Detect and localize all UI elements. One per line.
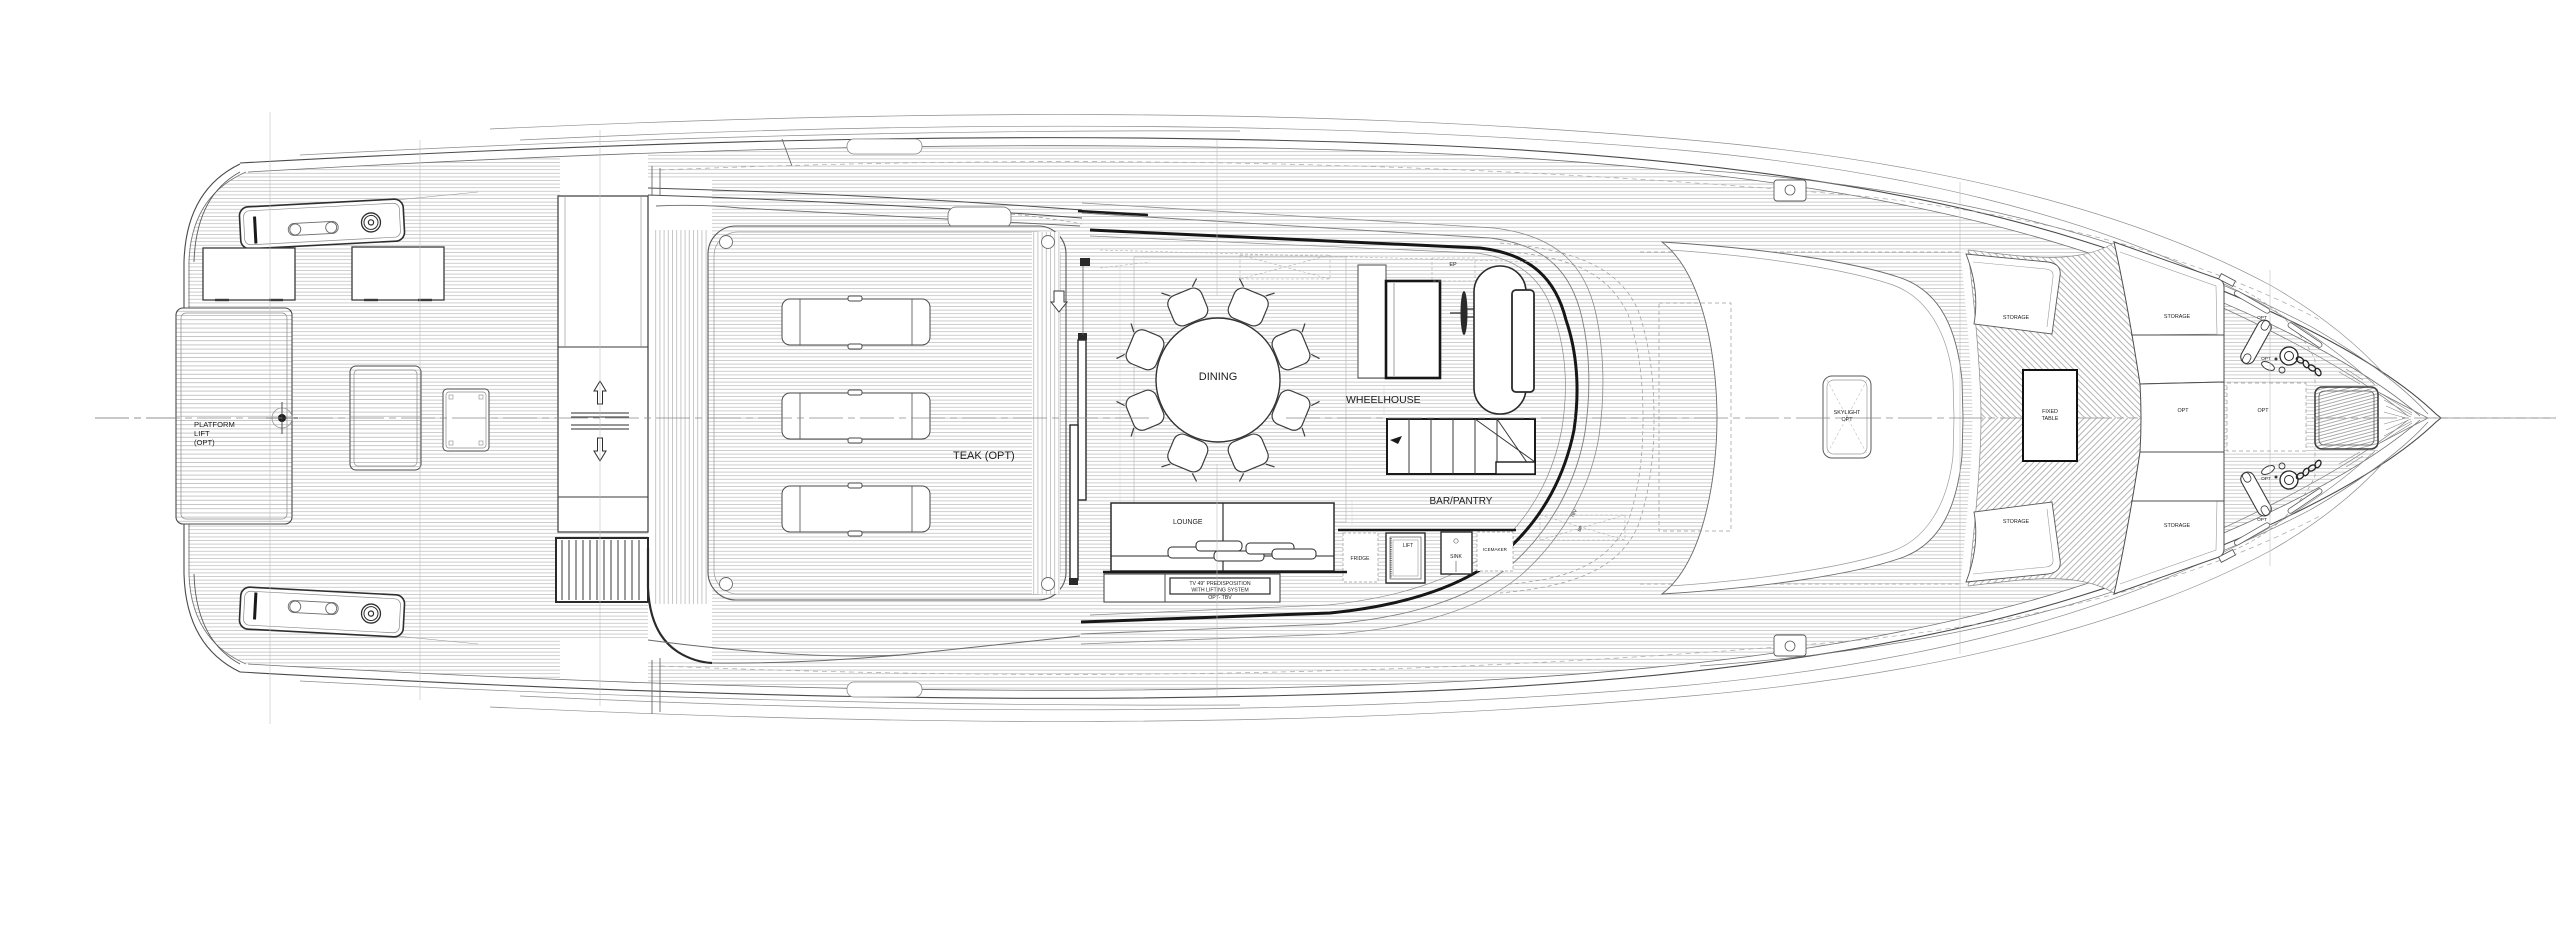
svg-text:WHEELHOUSE: WHEELHOUSE <box>1346 394 1421 406</box>
svg-text:LOUNGE: LOUNGE <box>1173 519 1203 526</box>
svg-text:STORAGE: STORAGE <box>2003 315 2030 321</box>
svg-text:STORAGE: STORAGE <box>2164 523 2191 529</box>
svg-text:FRIDGE: FRIDGE <box>1351 556 1371 562</box>
svg-text:TEAK (OPT): TEAK (OPT) <box>953 450 1015 462</box>
svg-text:STORAGE: STORAGE <box>2003 519 2030 525</box>
svg-text:(OPT): (OPT) <box>194 438 215 447</box>
svg-text:BAR/PANTRY: BAR/PANTRY <box>1430 496 1493 507</box>
svg-text:FIXED: FIXED <box>2042 409 2058 415</box>
svg-text:OPT: OPT <box>2257 408 2269 414</box>
svg-text:DINING: DINING <box>1199 371 1238 383</box>
svg-text:ICEMAKER: ICEMAKER <box>1483 547 1508 552</box>
svg-text:SKYLIGHT: SKYLIGHT <box>1834 410 1861 416</box>
svg-text:OPT: OPT <box>2257 517 2267 523</box>
svg-text:OPT: OPT <box>2261 356 2271 362</box>
svg-text:STORAGE: STORAGE <box>2164 314 2191 320</box>
svg-text:LIFT: LIFT <box>1403 543 1413 549</box>
svg-text:OPT: OPT <box>2257 315 2267 321</box>
svg-text:TABLE: TABLE <box>2042 416 2059 422</box>
svg-text:OPT- TBV: OPT- TBV <box>1208 595 1232 601</box>
svg-text:OPT: OPT <box>2261 476 2271 482</box>
svg-text:TV 49" PREDISPOSITION: TV 49" PREDISPOSITION <box>1189 581 1250 587</box>
svg-text:LIFT: LIFT <box>194 429 210 438</box>
svg-text:EP: EP <box>1449 262 1457 268</box>
svg-text:OPT: OPT <box>2177 408 2189 414</box>
svg-text:SINK: SINK <box>1450 554 1462 560</box>
svg-text:PLATFORM: PLATFORM <box>194 420 235 429</box>
svg-text:WITH LIFTING SYSTEM: WITH LIFTING SYSTEM <box>1191 588 1248 594</box>
